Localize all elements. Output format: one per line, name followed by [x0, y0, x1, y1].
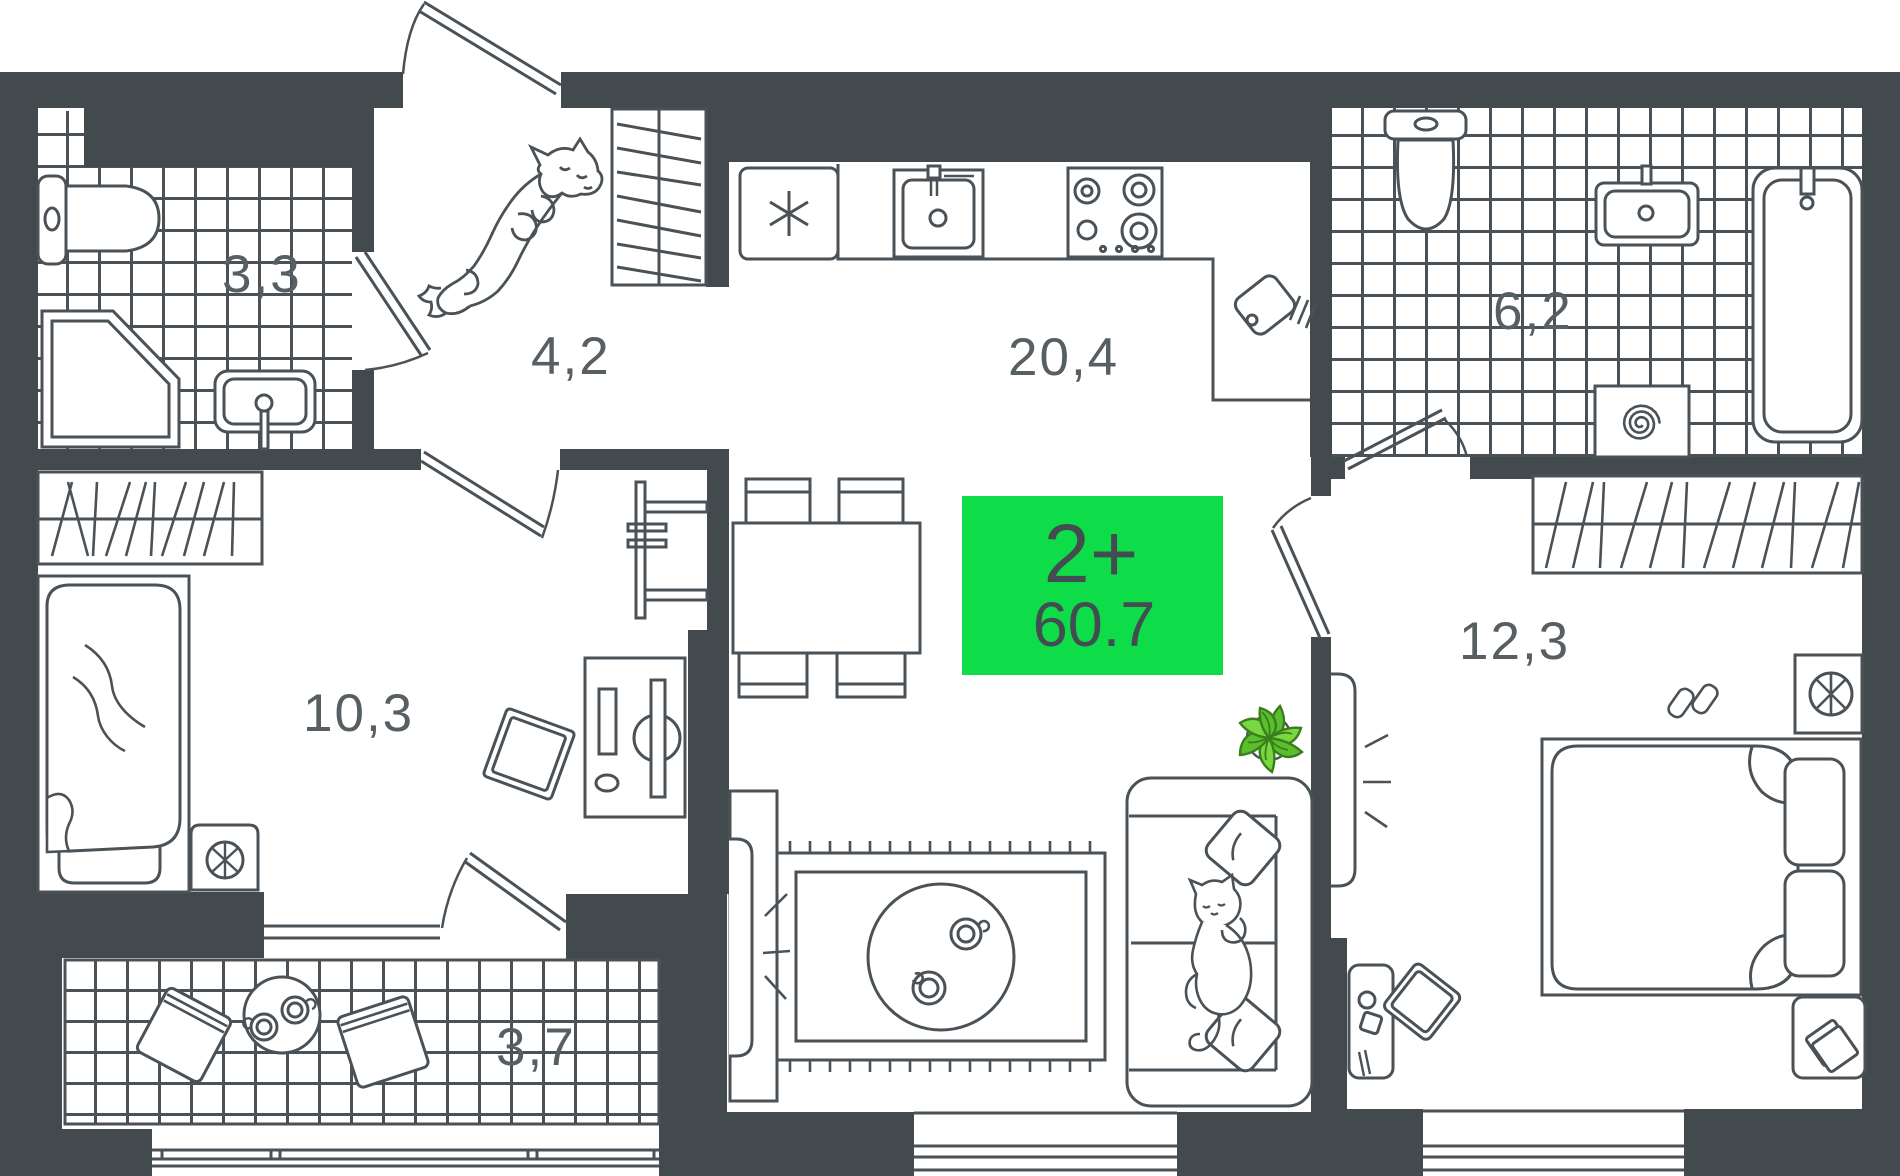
svg-text:20,4: 20,4 — [1008, 328, 1119, 387]
svg-text:12,3: 12,3 — [1459, 612, 1570, 671]
svg-text:6,2: 6,2 — [1493, 282, 1573, 341]
svg-text:3,7: 3,7 — [496, 1018, 576, 1077]
svg-text:2+: 2+ — [1044, 507, 1139, 600]
svg-text:4,2: 4,2 — [531, 327, 611, 386]
svg-text:10,3: 10,3 — [303, 684, 414, 743]
svg-text:60.7: 60.7 — [1033, 590, 1156, 660]
svg-text:3,3: 3,3 — [222, 245, 302, 304]
